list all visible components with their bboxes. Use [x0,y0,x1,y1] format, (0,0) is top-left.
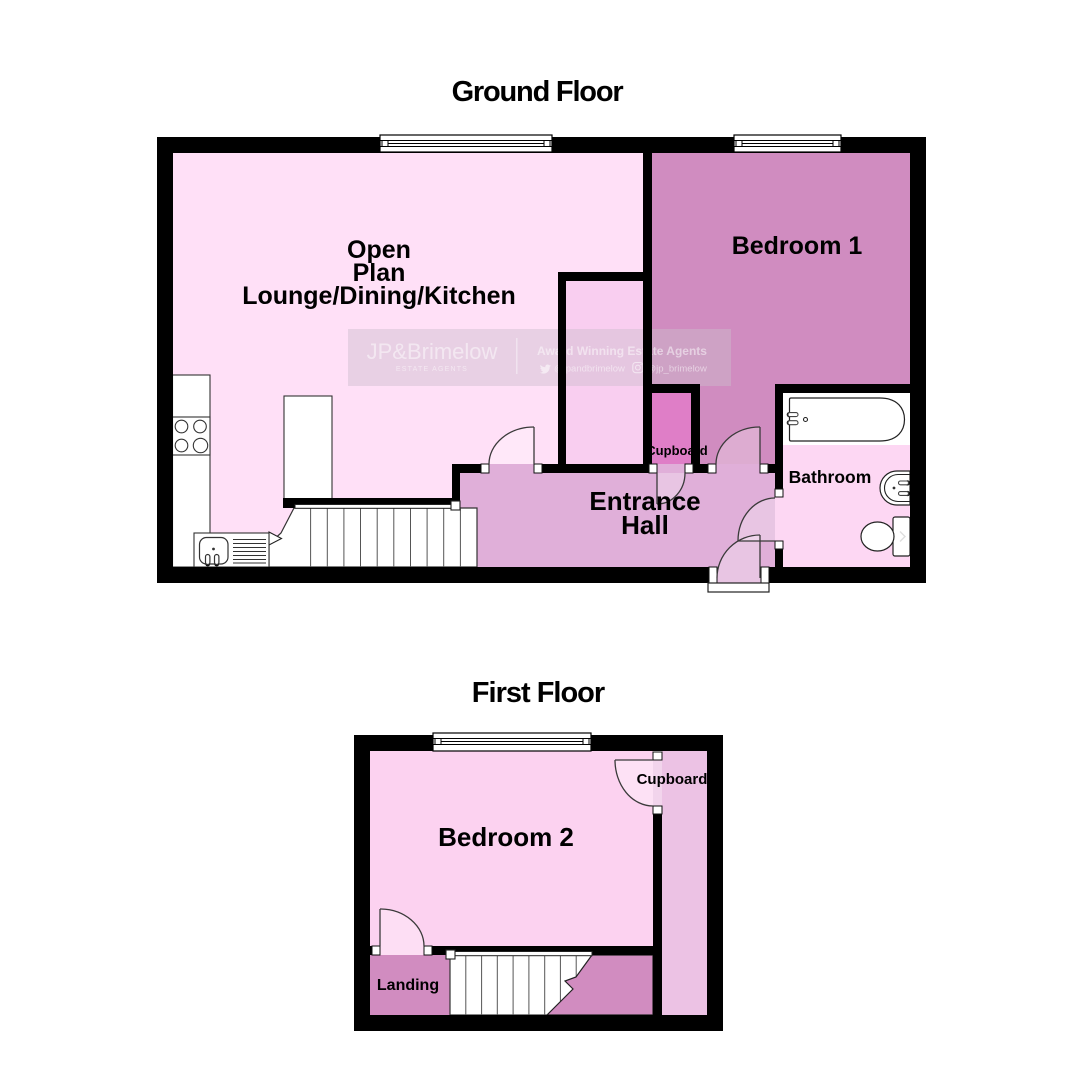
svg-text:Landing: Landing [377,977,439,994]
svg-text:Bathroom: Bathroom [789,467,872,487]
svg-text:Cupboard: Cupboard [637,771,708,788]
svg-text:Bedroom 1: Bedroom 1 [732,232,863,260]
svg-text:Lounge/Dining/Kitchen: Lounge/Dining/Kitchen [242,282,516,310]
svg-text:@jp_brimelow: @jp_brimelow [647,364,707,375]
svg-text:Bedroom 2: Bedroom 2 [438,822,574,852]
svg-text:JP&Brimelow: JP&Brimelow [367,339,498,364]
svg-text:Hall: Hall [621,510,669,540]
svg-text:ESTATE AGENTS: ESTATE AGENTS [396,366,468,373]
svg-text:First Floor: First Floor [472,677,605,709]
svg-text:Cupboard: Cupboard [646,443,707,458]
svg-text:Ground Floor: Ground Floor [452,76,624,108]
